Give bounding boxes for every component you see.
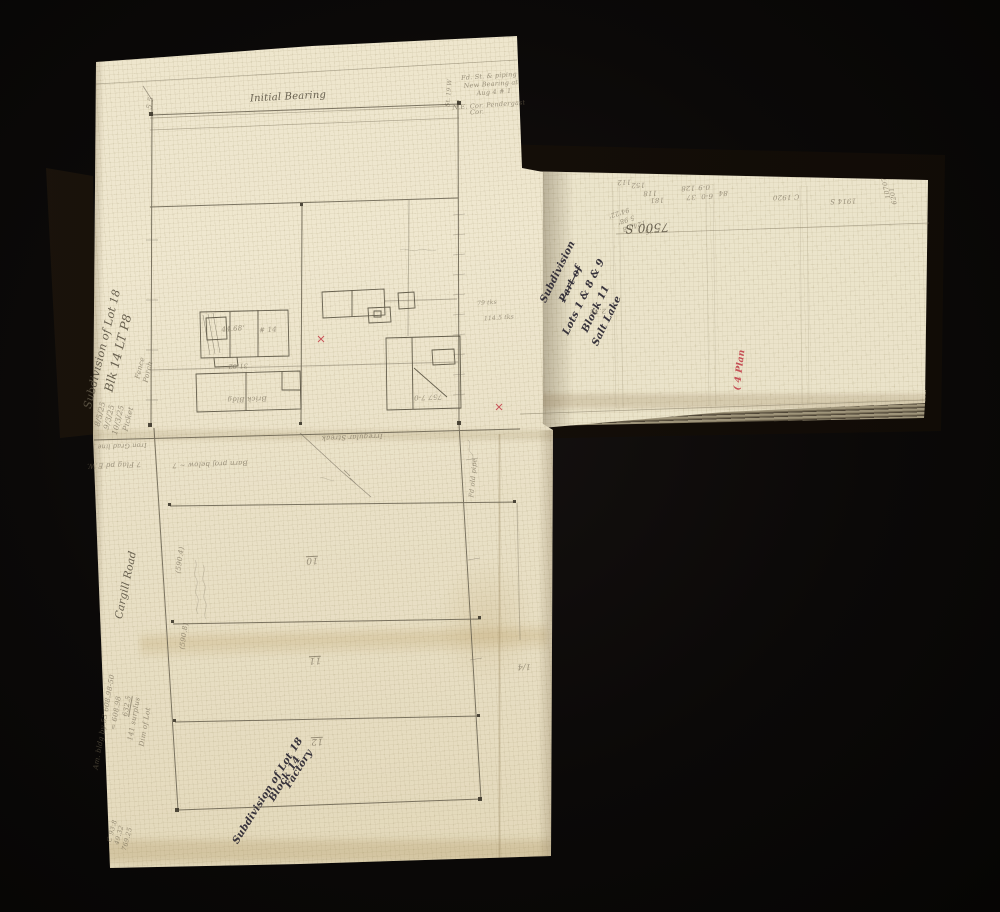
- annotation-lot-10: 10: [306, 555, 318, 565]
- annotation-col-181: 181: [650, 196, 664, 204]
- annotation-c1920: C 1920: [773, 193, 800, 202]
- annotation-note-flag: 7 Flag pd E.W.: [87, 460, 141, 470]
- annotation-s1914: 1914 S: [830, 197, 856, 206]
- annotation-dim-5904: (590.4): [174, 546, 186, 574]
- annotation-dim-55: 5.5: [144, 96, 155, 110]
- annotation-frac-14: 1/4: [517, 662, 531, 671]
- annotation-initial-bearing: Initial Bearing: [250, 90, 327, 105]
- annotation-cargill-road: Cargill Road: [113, 550, 139, 620]
- field-book-photo: Subdivision of Lot 18Blk 14 LT P88/5/259…: [0, 0, 1000, 912]
- annotation-col-84: 84: [718, 189, 728, 197]
- annotation-col-09: 0-9: [698, 183, 710, 191]
- annotation-lot-12: 12: [311, 736, 323, 746]
- annotation-brick-bldg: Brick Bldg: [227, 394, 267, 403]
- annotation-note-barn: Barn proj below ~ 7: [172, 459, 248, 470]
- annotation-col-37: 37: [686, 193, 696, 201]
- annotation-col-60: 6-0: [701, 192, 713, 200]
- annotation-red-plan-note: ( 4 Plan: [733, 349, 748, 391]
- annotation-strip-238: 2.38: [590, 307, 607, 316]
- annotation-dim-757: 757 7-0: [414, 393, 443, 402]
- annotation-lot-11: 11: [309, 655, 321, 665]
- annotation-note-grad: Iron Grad line: [97, 441, 146, 451]
- annotation-note-irregular: Irregular Streak: [321, 432, 383, 442]
- annotation-house-14: # 14: [259, 325, 277, 334]
- annotation-note-pendergast: N.E. Cor. Pendergast: [452, 98, 525, 111]
- annotation-dim-5908: (590.8): [178, 622, 190, 650]
- annotation-col-112: 112: [617, 178, 631, 186]
- annotation-calc-dim: Dim of Lot: [138, 707, 153, 747]
- annotation-col-152: 152: [631, 181, 645, 189]
- annotation-col-128: 128: [681, 184, 695, 192]
- annotation-note-fd-pipe: Fd old pipe: [467, 458, 478, 498]
- annotation-layer: Subdivision of Lot 18Blk 14 LT P88/5/259…: [0, 0, 1000, 912]
- annotation-ink-bottom-1: Subdivision of Lot 18: [231, 736, 306, 846]
- annotation-v6201: 6201: [887, 187, 898, 206]
- annotation-tks-79: 79 tks: [477, 299, 497, 307]
- annotation-note-aug: Aug 4 # 1: [476, 87, 511, 97]
- annotation-tks-1145: 114.5 tks: [484, 313, 514, 322]
- annotation-dim-3102: 31.02: [228, 362, 248, 371]
- annotation-dim-4468: 44.68': [221, 324, 245, 334]
- annotation-note-cor: Cor.: [470, 108, 485, 117]
